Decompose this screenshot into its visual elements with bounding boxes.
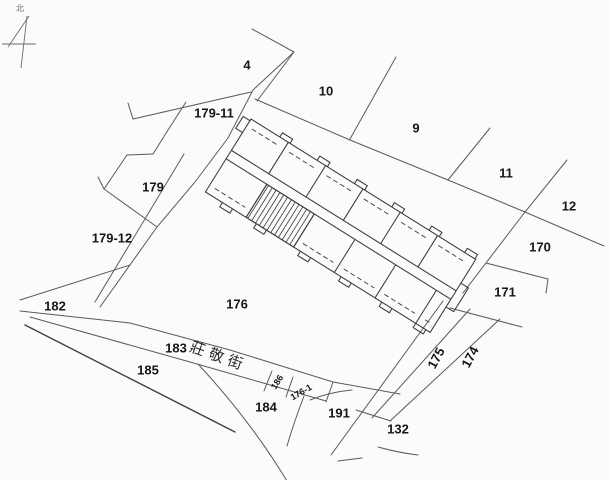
street-lines	[20, 265, 418, 480]
boundary-west-secondary	[95, 154, 184, 302]
street-name-label: 莊敬街	[187, 338, 250, 375]
parcel-label-183: 183	[165, 341, 187, 356]
strip-176-1-end	[326, 382, 333, 402]
parcel-label-10: 10	[319, 84, 333, 99]
parcel-label-179-11: 179-11	[194, 106, 234, 121]
parcel-label-179-12: 179-12	[92, 231, 132, 246]
parcel-label-185: 185	[137, 363, 159, 378]
parcel-label-171: 171	[494, 285, 516, 300]
road-arc-132-a	[378, 447, 418, 455]
cadastral-map-canvas: 北	[0, 0, 609, 480]
cadastral-map: 北	[0, 0, 609, 480]
parcel-label-11: 11	[499, 166, 513, 181]
north-label: 北	[16, 4, 24, 13]
north-arrow: 北	[2, 4, 36, 68]
street-south-edge	[30, 317, 326, 401]
strip-174-east	[390, 319, 500, 421]
parcel-label-182: 182	[44, 299, 66, 314]
boundary-northeast-main	[255, 99, 604, 246]
building-tabs-southwest	[220, 203, 426, 334]
parcel-label-179: 179	[142, 180, 164, 195]
hatched-stair-unit	[246, 184, 314, 247]
boundary-4-10	[257, 52, 294, 101]
north-arrow-stroke	[2, 16, 36, 68]
boundary-179-12-tick	[98, 177, 104, 189]
parcel-label-176-1: 176-1	[289, 382, 314, 402]
boundary-9-11	[448, 128, 490, 180]
road-arc-132-b	[338, 458, 362, 461]
parcel-label-9: 9	[412, 121, 419, 136]
parcel-label-184: 184	[255, 400, 277, 415]
parcel-label-191: 191	[328, 406, 350, 421]
boundary-11-12	[463, 160, 567, 293]
parcel-label-176: 176	[226, 297, 248, 312]
hatched-unit-border	[246, 184, 314, 247]
strip-bottom-cap	[356, 410, 391, 421]
boundary-179-tick	[127, 154, 153, 155]
boundary-10-9	[350, 57, 396, 139]
boundary-parcel4-top	[252, 29, 294, 52]
building-unit-dividers-bottom	[246, 184, 436, 323]
street-fan-1	[20, 265, 130, 300]
parcel-label-170: 170	[529, 240, 551, 255]
parcel-label-174: 174	[458, 343, 482, 370]
boundary-171-bottom	[450, 308, 522, 327]
parcel-label-4: 4	[243, 58, 251, 73]
parcel-label-132: 132	[387, 422, 409, 437]
boundary-179-west	[104, 155, 127, 189]
boundary-179-179-12	[104, 189, 157, 227]
parcel-label-175: 175	[424, 345, 447, 371]
curve-184-191	[287, 396, 304, 446]
parcel-labels: 410179-1191791112179-1217017117618218318…	[44, 58, 576, 437]
parcel-boundaries	[95, 29, 604, 455]
parcel-label-12: 12	[562, 199, 576, 214]
strip-175-174	[372, 309, 470, 418]
boundary-179-11-179	[153, 102, 186, 154]
